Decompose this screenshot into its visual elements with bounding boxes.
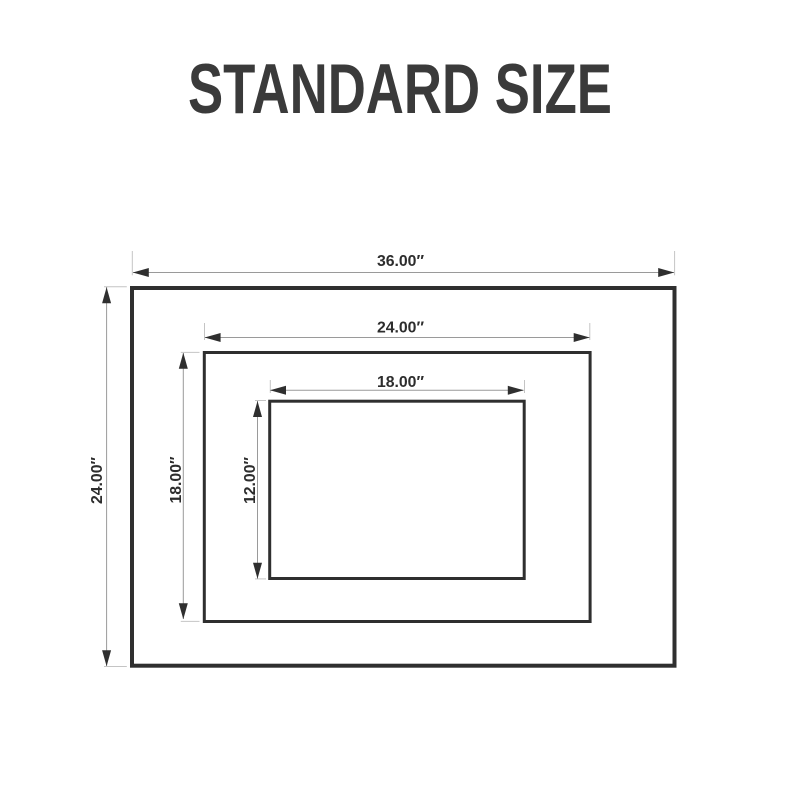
svg-text:36.00″: 36.00″	[377, 253, 425, 270]
svg-text:18.00″: 18.00″	[377, 374, 425, 391]
svg-text:24.00″: 24.00″	[377, 320, 425, 337]
svg-text:12.00″: 12.00″	[242, 457, 259, 505]
svg-text:STANDARD SIZE: STANDARD SIZE	[188, 49, 612, 128]
svg-text:18.00″: 18.00″	[168, 456, 185, 504]
svg-text:24.00″: 24.00″	[89, 457, 106, 505]
